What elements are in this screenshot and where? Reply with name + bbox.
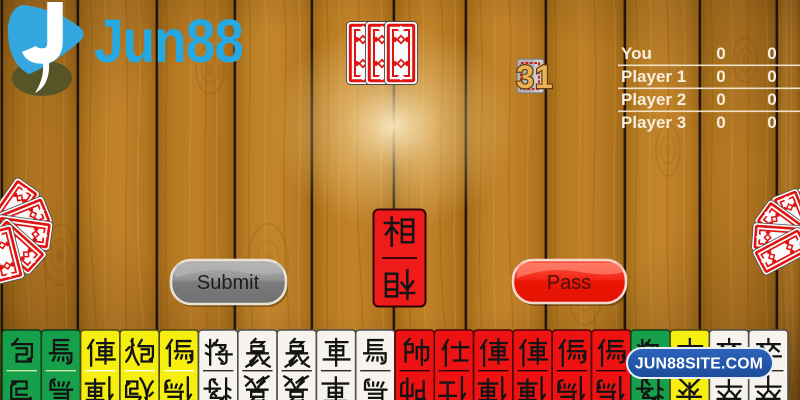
svg-text:0: 0 bbox=[716, 90, 725, 109]
svg-text:0: 0 bbox=[716, 113, 725, 132]
svg-text:Player 1: Player 1 bbox=[621, 67, 686, 86]
svg-text:0: 0 bbox=[716, 67, 725, 86]
svg-text:Player 2: Player 2 bbox=[621, 90, 686, 109]
svg-text:0: 0 bbox=[767, 90, 776, 109]
svg-text:Pass: Pass bbox=[547, 272, 591, 294]
svg-text:0: 0 bbox=[767, 44, 776, 63]
svg-text:Player 3: Player 3 bbox=[621, 113, 686, 132]
svg-text:Jun88: Jun88 bbox=[94, 8, 243, 76]
svg-text:0: 0 bbox=[767, 67, 776, 86]
svg-text:JUN88SITE.COM: JUN88SITE.COM bbox=[635, 356, 763, 373]
svg-text:Submit: Submit bbox=[197, 272, 260, 294]
svg-text:0: 0 bbox=[716, 44, 725, 63]
svg-text:31: 31 bbox=[516, 59, 554, 95]
svg-text:0: 0 bbox=[767, 113, 776, 132]
svg-text:You: You bbox=[621, 44, 652, 63]
